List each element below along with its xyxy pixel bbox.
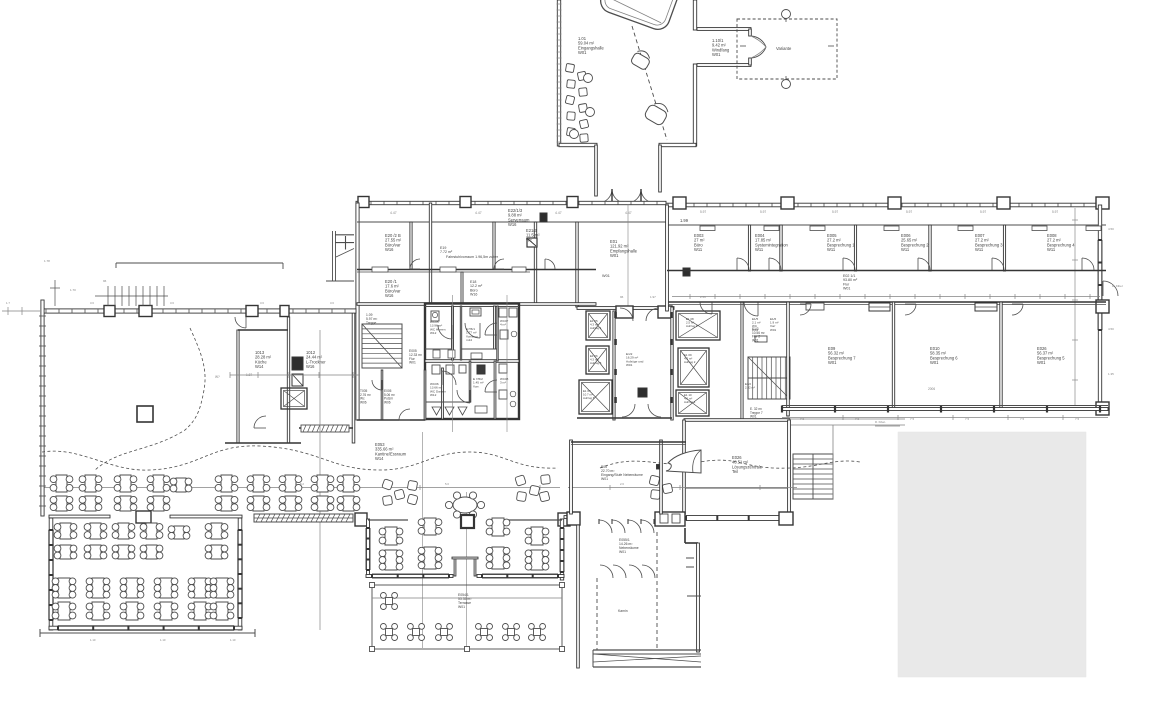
svg-text:7.5: 7.5 [965,417,970,421]
svg-text:7.5: 7.5 [855,417,860,421]
svg-text:5.97: 5.97 [832,210,838,214]
svg-text:7.5: 7.5 [1020,417,1025,421]
svg-text:2.56: 2.56 [700,295,706,299]
svg-text:5.0: 5.0 [445,482,449,486]
svg-text:1.97: 1.97 [650,295,656,299]
svg-text:5.97: 5.97 [760,210,766,214]
svg-text:2.6: 2.6 [620,482,624,486]
svg-text:7.5: 7.5 [800,417,805,421]
svg-text:1.35: 1.35 [1108,372,1114,376]
svg-text:4.50: 4.50 [1108,227,1114,231]
svg-text:Variante: Variante [776,46,792,51]
svg-text:5.97: 5.97 [1052,210,1058,214]
svg-text:Kamin: Kamin [618,609,628,613]
svg-text:1.7: 1.7 [6,301,10,305]
svg-text:1.10: 1.10 [160,638,166,642]
svg-text:4.47: 4.47 [475,211,482,215]
svg-text:3.6: 3.6 [90,301,94,305]
svg-text:3.6: 3.6 [170,301,174,305]
svg-text:5.97: 5.97 [700,210,706,214]
svg-text:1.70: 1.70 [70,288,76,292]
svg-text:1.10: 1.10 [230,638,236,642]
svg-text:2006: 2006 [928,387,935,391]
svg-text:3.6: 3.6 [330,301,334,305]
svg-text:96: 96 [103,279,107,283]
svg-text:5.97: 5.97 [906,210,912,214]
svg-text:96: 96 [620,295,624,299]
svg-text:4.47: 4.47 [625,211,632,215]
svg-text:4.47: 4.47 [555,211,562,215]
svg-text:R. Kibel: R. Kibel [1112,284,1123,288]
svg-text:4.47: 4.47 [390,211,397,215]
svg-text:5.97: 5.97 [980,210,986,214]
svg-text:R. Kibel-: R. Kibel- [875,420,886,424]
svg-text:1.78: 1.78 [44,259,50,263]
svg-text:7.5: 7.5 [910,417,915,421]
svg-text:Fahrstuhlvorraum 1.96,5m zuber: Fahrstuhlvorraum 1.96,5m zuber [446,255,499,259]
svg-text:1.99: 1.99 [680,218,689,223]
svg-text:W?: W? [215,375,220,379]
svg-text:4.50: 4.50 [1108,327,1114,331]
svg-text:3.6: 3.6 [260,301,264,305]
svg-text:1.10: 1.10 [90,638,96,642]
svg-text:7.5: 7.5 [1075,417,1080,421]
svg-text:W01: W01 [602,274,610,278]
